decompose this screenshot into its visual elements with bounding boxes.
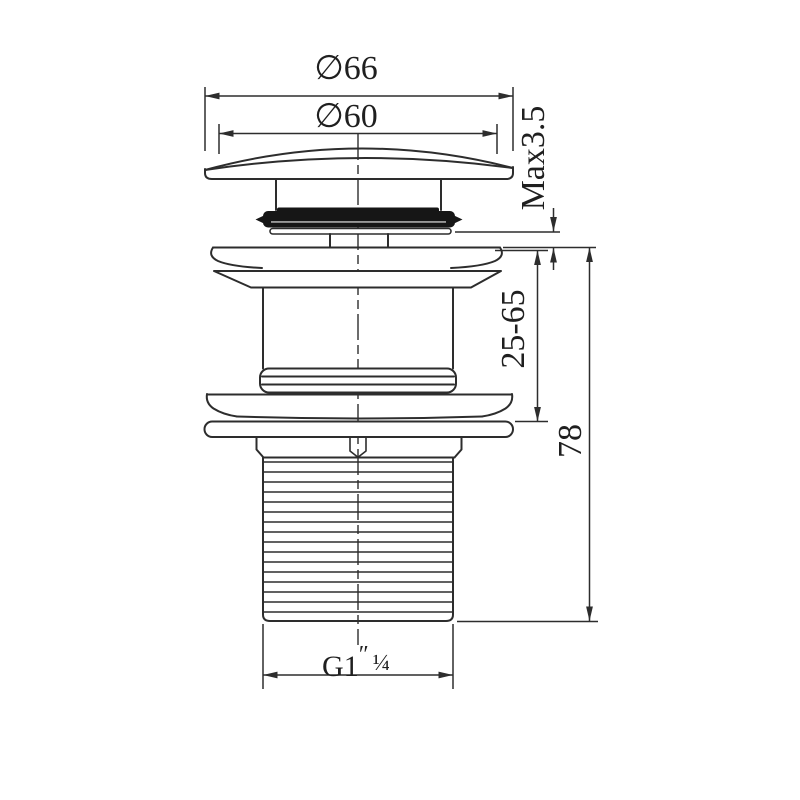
outer-diameter-label: ∅66 — [283, 52, 409, 86]
overall-height-label: 78 — [554, 411, 588, 471]
bead-rings — [260, 369, 456, 393]
technical-drawing-page: ∅66 ∅60 Max3.5 25-65 78 G1″¼ — [0, 0, 800, 800]
thread-size-label: G1″¼ — [293, 640, 419, 682]
clamping-range-label: 25-65 — [497, 275, 531, 383]
stem — [330, 234, 388, 247]
top-flange — [211, 248, 502, 288]
thread-prime: ″ — [359, 642, 370, 668]
seal-plate — [270, 229, 451, 235]
inner-diameter-label: ∅60 — [283, 100, 409, 134]
max-deck-label: Max3.5 — [517, 93, 551, 223]
thread-fraction: ¼ — [373, 650, 390, 675]
cap-dome — [205, 148, 513, 179]
dished-washer — [207, 394, 512, 419]
rubber-seal — [256, 208, 463, 228]
thread-g: G1 — [322, 650, 359, 683]
collar — [257, 438, 462, 458]
backing-washer — [205, 422, 514, 438]
